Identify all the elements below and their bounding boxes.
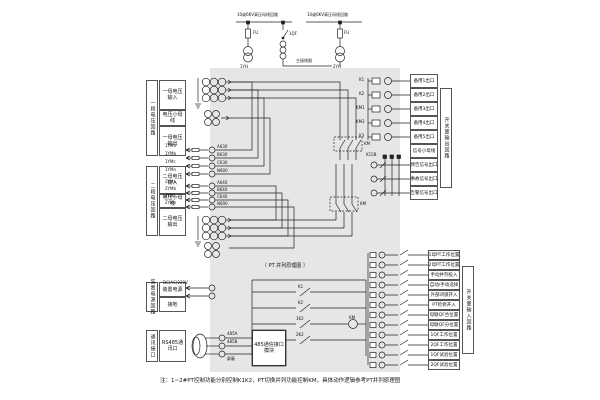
term1a-label: A630: [217, 144, 227, 149]
ground-label: 接地: [166, 302, 178, 308]
power-supply-label: 装置电源: [161, 287, 183, 293]
input-row-5: PT检修开入: [428, 300, 460, 310]
coil-k3-label: K3: [359, 133, 364, 138]
bus1-voltage-group-label: 一段电压回路: [150, 100, 155, 136]
input-row-4-label: 外部闭锁开入: [431, 293, 458, 298]
power-input-symbol: [186, 285, 215, 299]
bus1-voltage-group-box: 一段电压回路: [146, 80, 158, 156]
term1b-label: B630: [217, 152, 227, 157]
input-row-0-label: 1母PT工作位置: [429, 253, 460, 258]
input-row-2: 手动并列投入: [428, 270, 460, 280]
output-row-7: 事故信号出口: [410, 172, 438, 186]
bus2-voltage-group-box: 二段电压回路: [146, 166, 158, 236]
pt2-label: 2YH: [333, 64, 341, 69]
pt-switching-diagram: 10或6KV高压母线回路 10或6KV高压母线回路 FU FU 1QF 1YH …: [0, 0, 600, 400]
bus1-pt-cluster-symbol: [195, 78, 231, 126]
pt1-label: 1YH: [240, 64, 248, 69]
output-row-3: 备用4出口: [410, 116, 438, 130]
contact-k1-label: K1: [298, 284, 303, 289]
km2-label: KM: [360, 201, 366, 206]
wire1c-label: 1YMc: [165, 159, 176, 164]
input-row-7: 母联QF分位置: [428, 320, 460, 330]
rs485-shield-label: 屏蔽: [227, 356, 235, 361]
k15b-label: K15B: [366, 152, 376, 157]
wire2b-label: 2YMb: [165, 186, 176, 191]
bus1-voltage-busbar-cell: 电压小母线: [159, 110, 186, 126]
output-row-1-label: 备用2出口: [414, 93, 435, 98]
power-group-label: 装置电源回路: [150, 279, 155, 315]
input-row-0: 1母PT工作位置: [428, 250, 460, 260]
output-coil-rows: [368, 78, 410, 141]
bus1-voltage-busbar-label: 电压小母线: [160, 112, 185, 124]
input-group-label: 开关量输入回路: [466, 289, 471, 331]
input-row-9-label: 2QF工作位置: [431, 343, 458, 348]
input-row-2-label: 手动并列投入: [431, 273, 458, 278]
input-row-1: 2母PT工作位置: [428, 260, 460, 270]
output-row-4-label: 备用5出口: [414, 135, 435, 140]
wire1a-label: 1YMa: [165, 143, 176, 148]
output-group-box: 开关量输出回路: [440, 88, 452, 188]
output-row-3-label: 备用4出口: [414, 121, 435, 126]
contact-1k2-label: 1K2: [296, 316, 304, 321]
ground-cell: 接地: [159, 297, 186, 312]
term1c-label: C630: [217, 160, 227, 165]
rs485-module-box: 485通信接口模块: [252, 330, 286, 366]
input-row-7-label: 母联QF分位置: [430, 323, 459, 328]
output-row-0-label: 备用1出口: [414, 79, 435, 84]
qf1-label: 1QF: [289, 31, 297, 36]
term2n-label: N600: [217, 201, 228, 206]
input-row-8: 1QF工作位置: [428, 330, 460, 340]
input-row-11: 2QF试验位置: [428, 360, 460, 370]
comm-group-box: 通讯接口: [146, 330, 158, 362]
bus2-label: 10或6KV高压母线回路: [307, 12, 348, 17]
fu1-label: FU: [253, 30, 258, 35]
comm-port-cell: RS485通讯口: [159, 330, 186, 362]
output-row-5: 信号小母线: [410, 144, 438, 158]
wire2a-label: 2YMa: [165, 179, 176, 184]
output-row-5-label: 信号小母线: [413, 149, 436, 154]
wire2c-label: 2YMc: [165, 193, 176, 198]
coil-km1-label: KM1: [356, 105, 365, 110]
rs485-module-label: 485通信接口模块: [253, 342, 285, 354]
term1n-label: N600: [217, 168, 228, 173]
output-row-0: 备用1出口: [410, 74, 438, 88]
bus2-voltage-output-cell: 二母电压输出: [159, 208, 186, 236]
comm-group-label: 通讯接口: [150, 334, 155, 358]
input-rows-symbol: [368, 250, 428, 368]
input-group-box: 开关量输入回路: [462, 266, 474, 354]
bus2-voltage-output-label: 二母电压输出: [160, 216, 185, 228]
diagram-note: 注：1~2#PT控制功能分别控制K1K2，PT切换并列功能控制KM，具体动作逻辑…: [160, 378, 400, 384]
input-row-8-label: 1QF工作位置: [431, 333, 458, 338]
rs485-b-label: 485B: [227, 339, 237, 344]
wire1b-label: 1YMb: [165, 151, 176, 156]
comm-port-label: RS485通讯口: [160, 340, 185, 352]
term2c-label: C640: [217, 194, 227, 199]
output-row-4: 备用5出口: [410, 130, 438, 144]
input-row-6-label: 母联QF合位置: [430, 313, 459, 318]
bus1-label: 10或6KV高压母线回路: [237, 12, 278, 17]
input-row-4: 外部闭锁开入: [428, 290, 460, 300]
contact-2k2-label: 2K2: [296, 332, 304, 337]
bus2-pt-cluster-symbol: [195, 216, 231, 258]
coil-k1-label: K1: [359, 77, 364, 82]
input-row-1-label: 2母PT工作位置: [429, 263, 460, 268]
coil-km2-label: KM2: [356, 119, 365, 124]
input-row-3-label: 自动/手动选择: [430, 283, 459, 288]
km1-label: KM: [364, 141, 370, 146]
fu2-label: FU: [344, 30, 349, 35]
input-row-11-label: 2QF试验位置: [431, 363, 458, 368]
input-row-6: 母联QF合位置: [428, 310, 460, 320]
bus1-voltage-input-label: 一母电压输入: [160, 89, 185, 101]
input-row-10-label: 1QF试验位置: [431, 353, 458, 358]
input-row-3: 自动/手动选择: [428, 280, 460, 290]
input-row-10: 1QF试验位置: [428, 350, 460, 360]
output-row-8-label: 告警信号出口: [411, 191, 438, 196]
output-row-6-label: 预告信号出口: [411, 163, 438, 168]
output-group-label: 开关量输出回路: [444, 117, 449, 159]
contact-km-coil-label: KM: [349, 315, 355, 320]
output-row-6: 预告信号出口: [410, 158, 438, 172]
output-row-8: 告警信号出口: [410, 186, 438, 200]
wire1n-label: 1YMn: [165, 167, 176, 172]
output-row-7-label: 事故信号出口: [411, 177, 438, 182]
term2b-label: B640: [217, 187, 227, 192]
bus1-voltage-input-cell: 一母电压输入: [159, 80, 186, 110]
term2a-label: A640: [217, 180, 227, 185]
power-wire-label: DC(AC)220V: [163, 280, 188, 285]
pt-parallel-title: 〔 PT 并列原理图 〕: [262, 263, 308, 269]
input-row-5-label: PT检修开入: [432, 303, 455, 308]
output-row-2: 备用3出口: [410, 102, 438, 116]
output-row-2-label: 备用3出口: [414, 107, 435, 112]
bus2-terminal-rows: [186, 183, 294, 248]
wire2n-label: 2YMn: [165, 200, 176, 205]
coil-k2-label: K2: [359, 91, 364, 96]
bus2-voltage-group-label: 二段电压回路: [150, 183, 155, 219]
km-switch-group-1: [231, 82, 362, 160]
main-wiring-label: 主接线图: [296, 58, 312, 63]
rs485-a-label: 485A: [227, 331, 237, 336]
power-group-box: 装置电源回路: [146, 282, 158, 312]
output-row-1: 备用2出口: [410, 88, 438, 102]
signal-bus-drops: [371, 155, 410, 196]
input-row-9: 2QF工作位置: [428, 340, 460, 350]
contact-k2-label: K2: [298, 300, 303, 305]
